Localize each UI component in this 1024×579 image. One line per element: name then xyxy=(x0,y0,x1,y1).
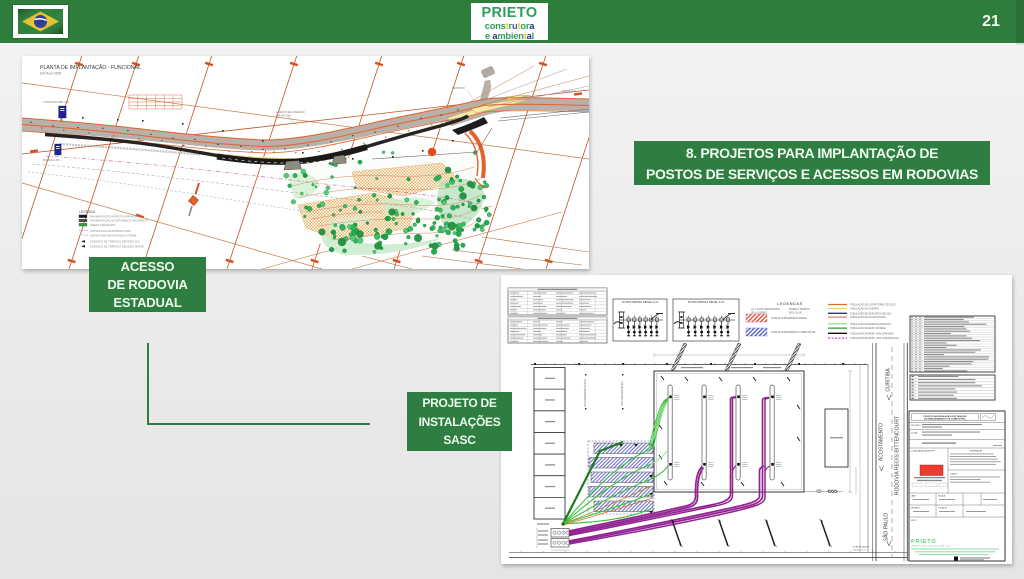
svg-text:ACESSOS DE TRÁFEGO SENTIDO SUL: ACESSOS DE TRÁFEGO SENTIDO SUL xyxy=(90,240,140,244)
svg-text:PLANTA BAIXA: PLANTA BAIXA xyxy=(853,546,869,549)
svg-text:PLANTA DE IMPLANTAÇÃO - FUNCIO: PLANTA DE IMPLANTAÇÃO - FUNCIONAL xyxy=(40,64,141,71)
svg-text:LAUDO:: LAUDO: xyxy=(951,473,959,476)
svg-text:FILTRO PRENSA DIESEL S-10: FILTRO PRENSA DIESEL S-10 xyxy=(688,300,725,304)
svg-text:PRIETO: PRIETO xyxy=(911,539,937,545)
svg-text:ÁREAS GRAMADAS: ÁREAS GRAMADAS xyxy=(90,223,115,227)
svg-text:CURITIBA: CURITIBA xyxy=(886,368,892,392)
svg-text:≈ RODOVIA BR-116: ≈ RODOVIA BR-116 xyxy=(42,100,69,104)
svg-text:ESCALA 1/500: ESCALA 1/500 xyxy=(40,72,61,76)
svg-text:TANQUE SUBTERRÂNEO DIESEL: TANQUE SUBTERRÂNEO DIESEL xyxy=(771,317,808,320)
svg-text:DESENHO: DESENHO xyxy=(911,508,920,510)
svg-text:MOD. SL-60: MOD. SL-60 xyxy=(789,313,802,315)
svg-text:RODOVIA REGIS BITTENCOURT: RODOVIA REGIS BITTENCOURT xyxy=(895,415,901,495)
svg-text:VISTO: VISTO xyxy=(911,520,917,522)
svg-text:LIMITE FAIXA SEGURANÇA LATERAL: LIMITE FAIXA SEGURANÇA LATERAL xyxy=(90,233,137,237)
svg-text:TUBULAÇÃO DE RESP. COM COMANDO: TUBULAÇÃO DE RESP. COM COMANDO xyxy=(850,332,894,335)
svg-text:TUBULAÇÃO DE RESP. SISTEMA: TUBULAÇÃO DE RESP. SISTEMA xyxy=(850,327,886,330)
svg-text:ACESSO SECUNDÁRIO: ACESSO SECUNDÁRIO xyxy=(276,110,305,114)
svg-text:BOMBA 4 TEMPOS: BOMBA 4 TEMPOS xyxy=(789,308,810,311)
svg-text:PROJETO:: PROJETO: xyxy=(911,425,922,427)
svg-text:TUBULAÇÃO DE ÁGUA POTÁVEL: TUBULAÇÃO DE ÁGUA POTÁVEL xyxy=(850,316,887,319)
svg-text:CX = CAIXA SEPARADORA: CX = CAIXA SEPARADORA xyxy=(751,308,780,311)
svg-text:ESCALA 1:250: ESCALA 1:250 xyxy=(853,548,867,551)
svg-text:PAVIMENTAÇÃO ASFÁLTICA PRINCIP: PAVIMENTAÇÃO ASFÁLTICA PRINCIPAL xyxy=(90,214,141,219)
svg-text:← SAO PAULO: ← SAO PAULO xyxy=(558,89,576,93)
svg-text:LEGENDAS: LEGENDAS xyxy=(777,301,803,306)
svg-text:PROJETO DA INSTALAÇÃO DOS TANQ: PROJETO DA INSTALAÇÃO DOS TANQUES xyxy=(923,415,967,418)
svg-text:RUBIÃO JR →: RUBIÃO JR → xyxy=(43,157,63,162)
svg-text:TUBULAÇÃO DE SUSPIRO: TUBULAÇÃO DE SUSPIRO xyxy=(850,308,879,311)
svg-text:ACOSTAMENTO: ACOSTAMENTO xyxy=(879,423,885,461)
svg-text:FILTRO PRENSA DIESEL S-10: FILTRO PRENSA DIESEL S-10 xyxy=(622,300,659,304)
svg-text:OBSERVAÇÃO: OBSERVAÇÃO xyxy=(969,450,983,453)
svg-text:DE ARMAZENAMENTO DE COMBUSTÍVE: DE ARMAZENAMENTO DE COMBUSTÍVEL xyxy=(924,418,967,421)
svg-text:RUA PROJETADA SUL: RUA PROJETADA SUL xyxy=(621,380,624,406)
svg-text:LEGENDA: LEGENDA xyxy=(79,210,96,214)
svg-text:TUBULAÇÃO DE LUZ RETORNO DE ÓL: TUBULAÇÃO DE LUZ RETORNO DE ÓLEO xyxy=(850,304,896,307)
svg-text:TUBULAÇÃO DE REDE ELETRODUTO: TUBULAÇÃO DE REDE ELETRODUTO xyxy=(850,323,891,326)
svg-text:LOCADOR: LOCADOR xyxy=(938,507,948,510)
svg-text:TUBULAÇÃO DE RESP. COM COMANDO: TUBULAÇÃO DE RESP. COM COMANDO ELE xyxy=(850,337,899,340)
svg-text:SÃO PAULO: SÃO PAULO xyxy=(883,513,890,542)
svg-text:RUA SEBASTIÃO ALVES: RUA SEBASTIÃO ALVES xyxy=(584,379,587,407)
svg-text:LIMITE FAIXA DE DOMÍNIO DNIT: LIMITE FAIXA DE DOMÍNIO DNIT xyxy=(90,229,131,233)
svg-text:TUBULAÇÃO DE DESCARGA SELADA: TUBULAÇÃO DE DESCARGA SELADA xyxy=(850,312,891,315)
svg-text:TANQUE SUBTERRÂNEO COMBUSTÍVEL: TANQUE SUBTERRÂNEO COMBUSTÍVEL xyxy=(771,331,816,334)
svg-text:RETORNO: RETORNO xyxy=(452,86,465,90)
svg-text:LOCALIZAÇÃO/MUNICÍPIO: LOCALIZAÇÃO/MUNICÍPIO xyxy=(911,450,935,453)
svg-text:DATA: DATA xyxy=(911,495,916,498)
svg-text:LOCAL:: LOCAL: xyxy=(911,432,919,435)
svg-text:KM 245+300: KM 245+300 xyxy=(276,114,291,118)
svg-text:ACESSOS DE TRÁFEGO SENTIDO NOR: ACESSOS DE TRÁFEGO SENTIDO NORTE xyxy=(90,244,144,248)
svg-text:CREA Nº 0758 - CONSTRUTORA LTD: CREA Nº 0758 - CONSTRUTORA LTDA xyxy=(911,545,951,548)
svg-text:ESCALA: ESCALA xyxy=(938,495,946,498)
